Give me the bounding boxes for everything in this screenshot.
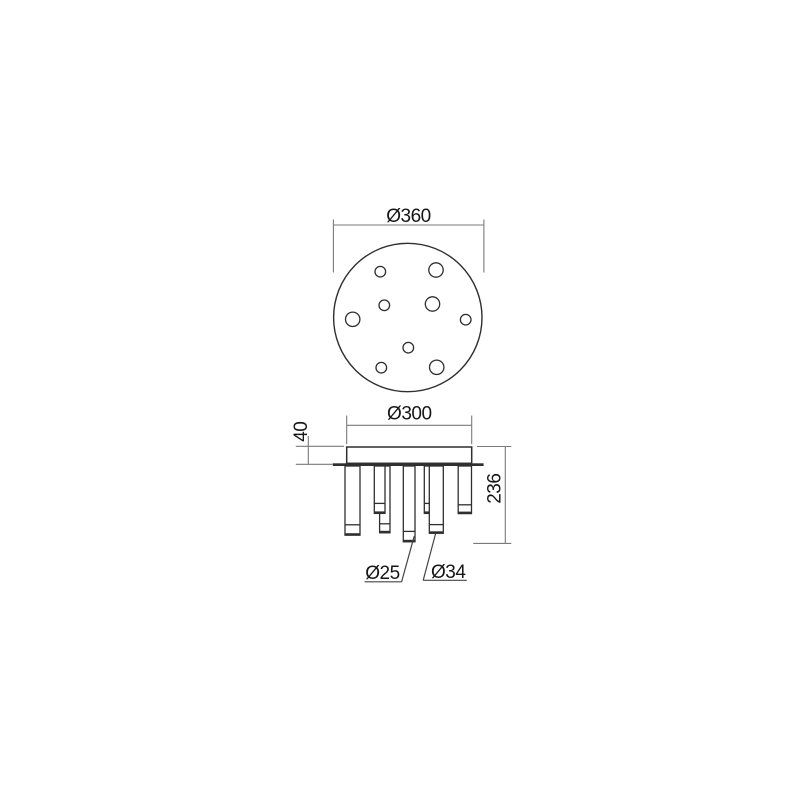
large-hole [425, 297, 439, 311]
technical-drawing: Ø360 Ø300 [0, 0, 800, 800]
pendant-tube-large [429, 466, 443, 533]
small-hole [379, 300, 390, 311]
large-hole [430, 360, 444, 374]
dimension-fixture-height: 236 [473, 447, 511, 544]
canopy-height-label: 40 [291, 422, 312, 442]
small-hole [375, 266, 386, 277]
pendant-tube [458, 466, 471, 514]
pendant-tube-small [403, 466, 415, 542]
drawing-canvas: Ø360 Ø300 [0, 0, 800, 800]
outer-diameter-label: Ø360 [386, 206, 430, 227]
pendant-tube [374, 466, 385, 513]
side-view: Ø300 [291, 404, 512, 585]
large-hole [429, 263, 443, 277]
top-view: Ø360 [333, 206, 484, 392]
small-tube-diameter-label: Ø25 [365, 563, 399, 584]
pendant-tube [345, 466, 360, 535]
callout-large-tube-diameter: Ø34 [423, 534, 467, 583]
canopy-body [347, 447, 472, 463]
large-tube-diameter-label: Ø34 [431, 562, 466, 583]
small-hole [376, 362, 387, 373]
dimension-canopy-height: 40 [291, 422, 344, 465]
small-hole [403, 342, 414, 353]
small-hole [460, 314, 471, 325]
large-hole [346, 312, 360, 326]
leader-line [402, 536, 415, 582]
canopy-diameter-label: Ø300 [387, 404, 431, 425]
fixture-height-label: 236 [484, 474, 505, 504]
callout-small-tube-diameter: Ø25 [365, 536, 415, 584]
